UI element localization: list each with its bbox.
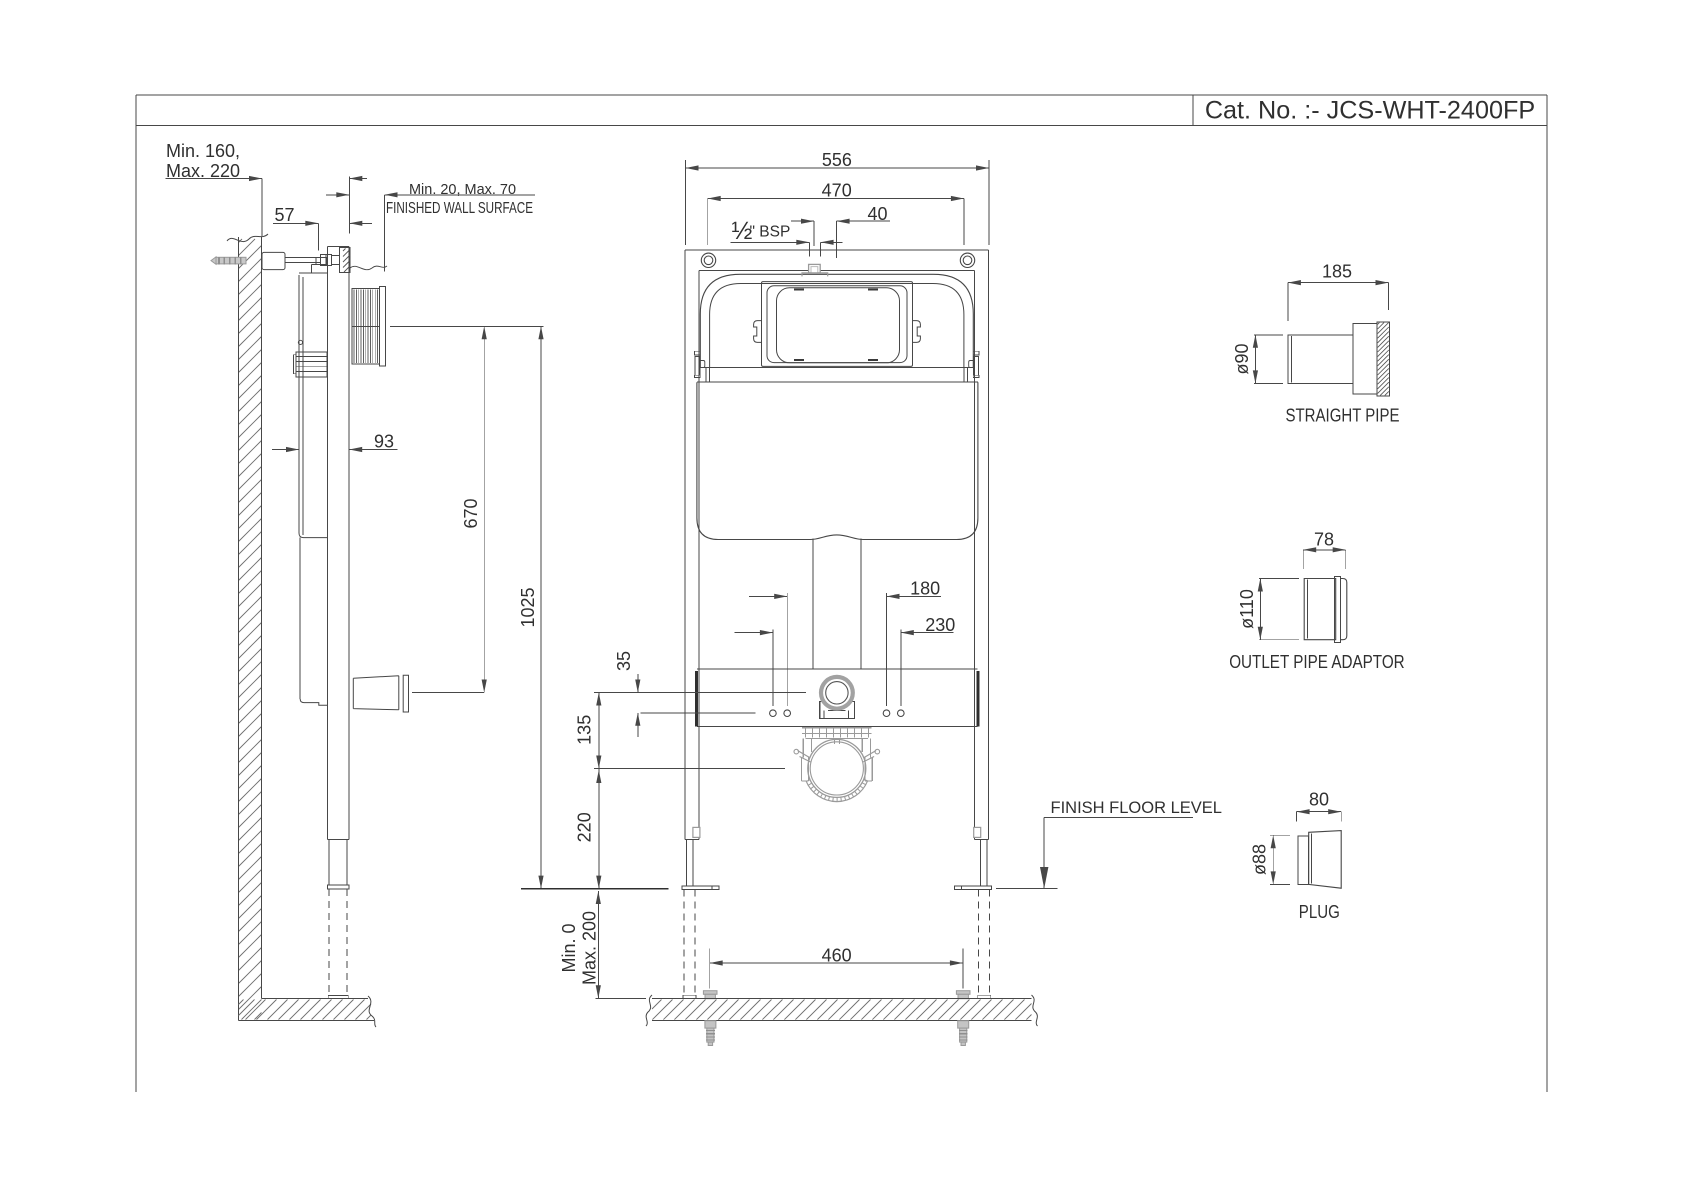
svg-text:OUTLET PIPE ADAPTOR: OUTLET PIPE ADAPTOR xyxy=(1229,652,1405,672)
svg-text:STRAIGHT PIPE: STRAIGHT PIPE xyxy=(1286,406,1400,426)
svg-text:135: 135 xyxy=(575,715,595,745)
svg-text:185: 185 xyxy=(1322,262,1352,282)
svg-text:PLUG: PLUG xyxy=(1299,902,1340,922)
svg-text:" BSP: " BSP xyxy=(750,224,791,241)
svg-text:670: 670 xyxy=(461,498,481,528)
svg-text:460: 460 xyxy=(822,945,852,965)
svg-text:470: 470 xyxy=(822,180,852,200)
svg-text:ø110: ø110 xyxy=(1237,589,1257,629)
svg-text:180: 180 xyxy=(910,578,940,598)
svg-text:80: 80 xyxy=(1309,790,1329,810)
svg-text:220: 220 xyxy=(575,812,595,842)
svg-text:556: 556 xyxy=(822,150,852,170)
svg-text:Max. 200: Max. 200 xyxy=(580,911,600,985)
svg-text:35: 35 xyxy=(614,651,634,671)
svg-text:1025: 1025 xyxy=(518,587,538,627)
svg-text:Cat. No. :- JCS-WHT-2400FP: Cat. No. :- JCS-WHT-2400FP xyxy=(1205,97,1535,125)
svg-text:FINISH FLOOR LEVEL: FINISH FLOOR LEVEL xyxy=(1051,799,1222,817)
svg-text:57: 57 xyxy=(274,205,294,225)
svg-text:ø88: ø88 xyxy=(1250,844,1270,875)
svg-text:ø90: ø90 xyxy=(1232,343,1252,374)
svg-text:Min. 0: Min. 0 xyxy=(559,923,579,972)
svg-text:FINISHED WALL SURFACE: FINISHED WALL SURFACE xyxy=(386,200,533,217)
svg-text:78: 78 xyxy=(1314,530,1334,550)
svg-text:93: 93 xyxy=(374,432,394,452)
svg-text:Min. 160,: Min. 160, xyxy=(166,141,240,161)
svg-text:Min. 20, Max. 70: Min. 20, Max. 70 xyxy=(409,181,516,198)
